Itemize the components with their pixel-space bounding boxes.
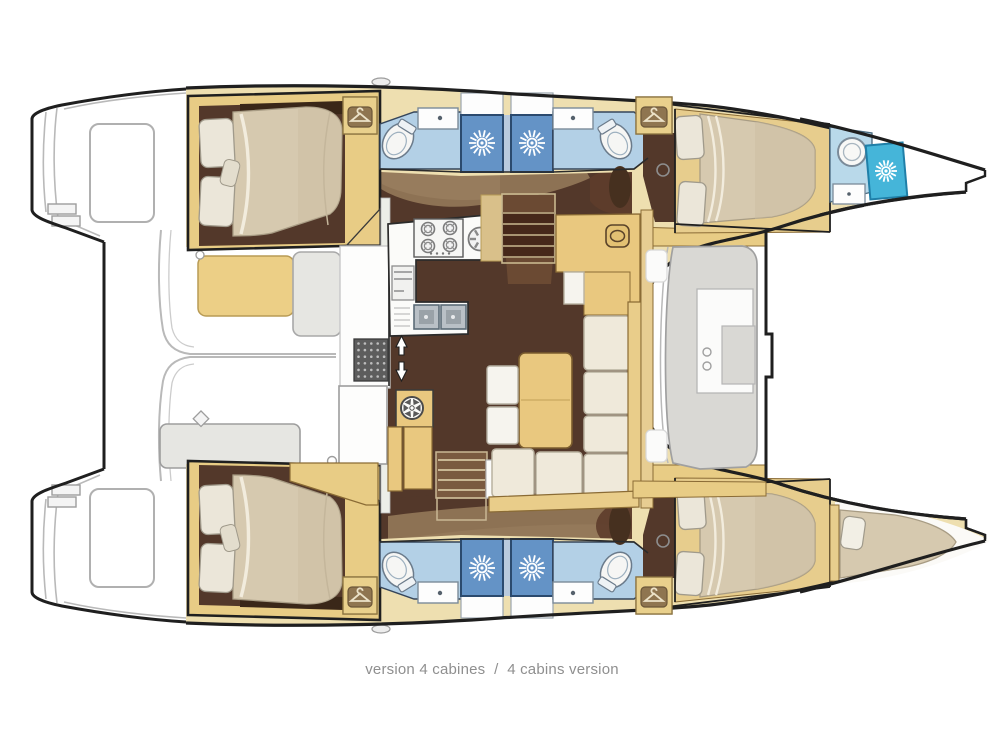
- svg-text:version 4 cabines / 4 cabins: version 4 cabines / 4 cabins version: [365, 661, 619, 678]
